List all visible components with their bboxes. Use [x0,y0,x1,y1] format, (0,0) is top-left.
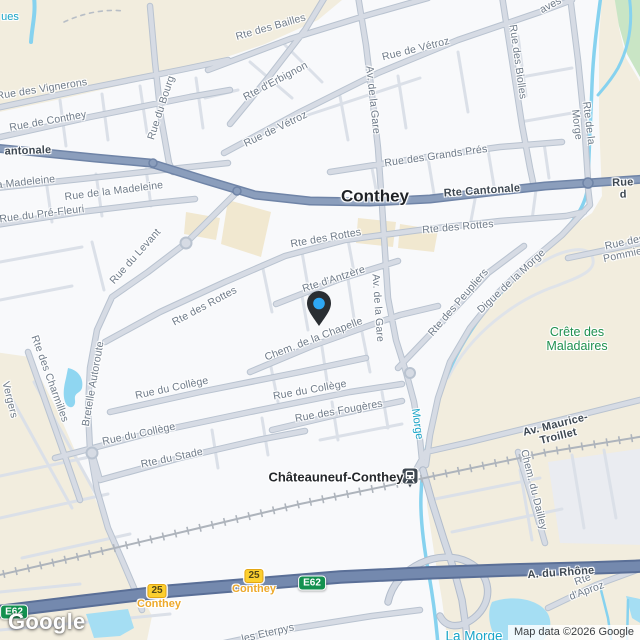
pond [64,368,83,407]
map-marker-pin[interactable] [307,291,331,326]
roundabout [583,178,593,188]
map-graphics [0,0,640,640]
map-canvas[interactable]: uesRte des BaillesRue des VigneronsRue d… [0,0,640,640]
map-attribution: Map data ©2026 Google [508,625,640,640]
building-block [548,448,640,545]
train-station-icon[interactable] [402,468,418,488]
pin-dot [313,298,325,310]
junction-node [149,159,157,167]
junction-node [233,187,241,195]
google-logo[interactable]: Google [8,609,86,635]
